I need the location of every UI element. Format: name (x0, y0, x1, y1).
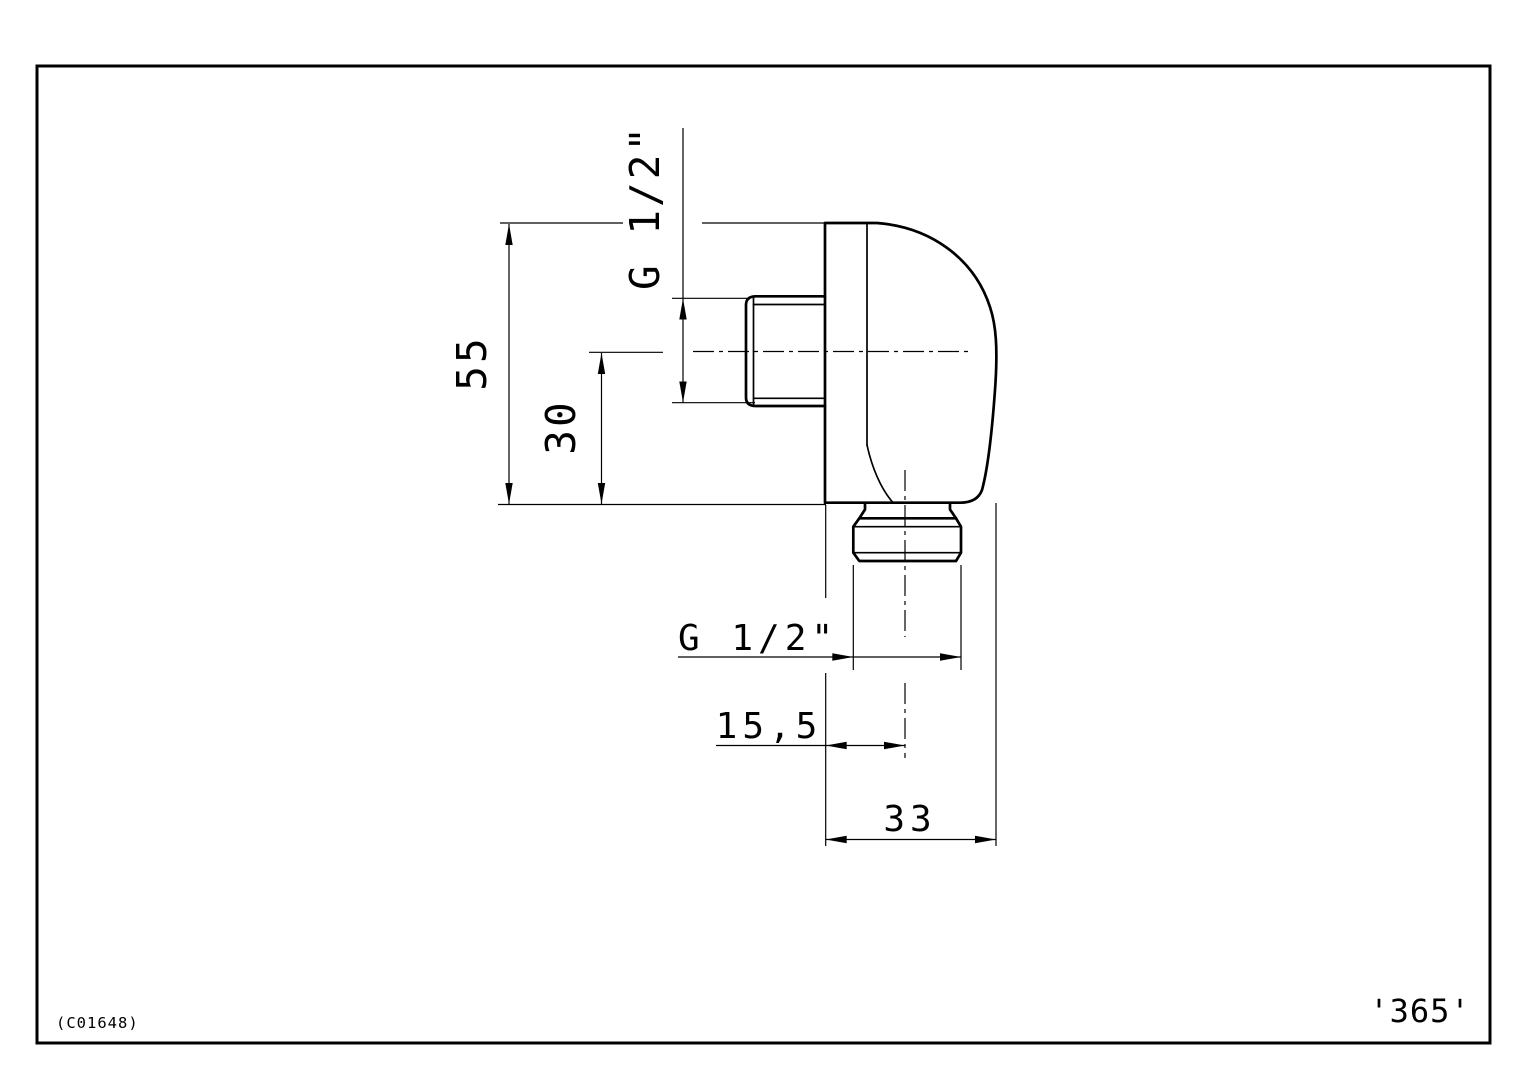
dim-55-arrow-down (505, 483, 512, 504)
dim-55-label: 55 (448, 335, 496, 390)
body-transition-curve (867, 445, 893, 503)
bottom-neck-right (950, 503, 956, 519)
dim-33-arrow-right (975, 836, 996, 843)
centerlines (693, 352, 968, 759)
dimension-15-5: 15,5 (716, 505, 905, 846)
dimension-bottom-thread: G 1/2" (678, 565, 961, 670)
dim-gbottom-arrow-right (940, 653, 961, 660)
drawing-sheet: 55 30 G 1/2" G 1/2" (0, 0, 1526, 1080)
dim-30-arrow-down (598, 483, 605, 504)
dimension-30: 30 (537, 352, 663, 504)
dim-gside-arrow-down (679, 382, 686, 403)
technical-drawing-elbow-fitting: 55 30 G 1/2" G 1/2" (0, 0, 1526, 1080)
dim-55-arrow-up (505, 224, 512, 245)
page-reference: '365' (1369, 992, 1470, 1030)
dim-30-label: 30 (537, 399, 585, 454)
document-code: (C01648) (56, 1014, 139, 1032)
dim-155-arrow-left (826, 742, 847, 749)
dim-33-arrow-left (826, 836, 847, 843)
dimension-side-thread: G 1/2" (621, 124, 755, 403)
dim-gside-label: G 1/2" (621, 124, 669, 290)
bottom-neck-left (859, 503, 865, 519)
sheet-border-frame (37, 66, 1490, 1043)
dim-33-label: 33 (883, 799, 936, 840)
bottom-collar-outline (853, 518, 961, 561)
dim-155-arrow-right (884, 742, 905, 749)
dim-gside-arrow-up (679, 299, 686, 320)
dimension-33: 33 (826, 503, 996, 846)
body-outline (825, 223, 996, 503)
dim-gbottom-label: G 1/2" (678, 618, 838, 659)
fitting-body (746, 223, 996, 561)
dim-155-label: 15,5 (716, 706, 823, 747)
dim-30-arrow-up (598, 353, 605, 374)
